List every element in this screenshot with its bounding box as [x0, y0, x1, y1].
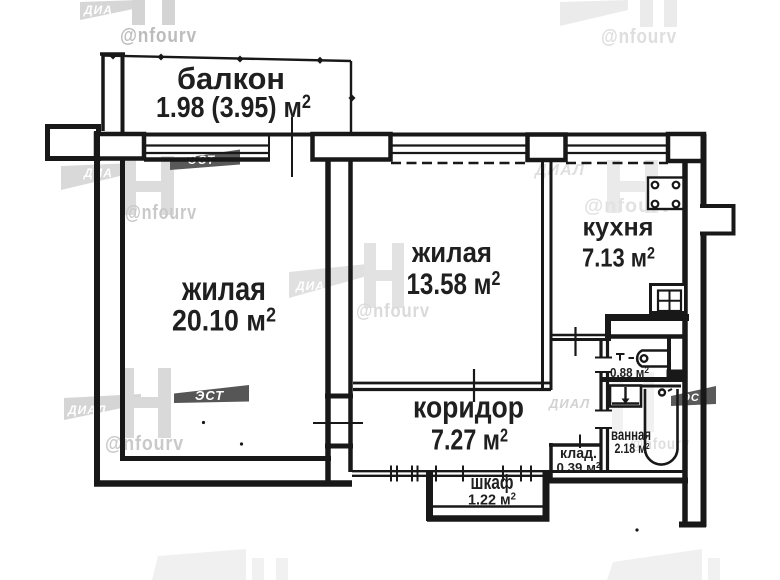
- svg-text:1.22 м2: 1.22 м2: [468, 492, 516, 509]
- svg-text:ДИА: ДИА: [295, 279, 325, 293]
- svg-text:@nfourv: @nfourv: [356, 301, 430, 322]
- svg-text:ДИАЛ: ДИАЛ: [533, 162, 585, 179]
- svg-text:@nfourv: @nfourv: [120, 25, 197, 47]
- svg-text:0.39 м2: 0.39 м2: [557, 460, 602, 475]
- svg-text:20.10 м2: 20.10 м2: [172, 305, 276, 338]
- svg-text:@nfourv: @nfourv: [105, 433, 184, 455]
- svg-text:ЭСТ: ЭСТ: [195, 388, 224, 403]
- svg-text:кухня: кухня: [583, 212, 654, 242]
- svg-text:1.98 (3.95) м2: 1.98 (3.95) м2: [156, 92, 311, 124]
- svg-text:коридор: коридор: [413, 390, 524, 425]
- svg-text:жилая: жилая: [411, 237, 492, 269]
- svg-text:балкон: балкон: [177, 61, 285, 96]
- svg-text:ДИАЛ: ДИАЛ: [67, 403, 106, 417]
- svg-text:7.13 м2: 7.13 м2: [582, 243, 655, 273]
- svg-text:13.58 м2: 13.58 м2: [407, 268, 501, 301]
- svg-text:@nfourv: @nfourv: [125, 202, 197, 224]
- svg-text:ДИА: ДИА: [83, 3, 113, 17]
- svg-text:7.27 м2: 7.27 м2: [431, 425, 508, 457]
- svg-text:2.18 м2: 2.18 м2: [615, 441, 650, 456]
- svg-text:@nfourv: @nfourv: [601, 26, 677, 48]
- svg-text:жилая: жилая: [181, 270, 266, 307]
- svg-text:0.88 м2: 0.88 м2: [610, 365, 649, 380]
- svg-text:ДИАЛ: ДИАЛ: [548, 396, 590, 411]
